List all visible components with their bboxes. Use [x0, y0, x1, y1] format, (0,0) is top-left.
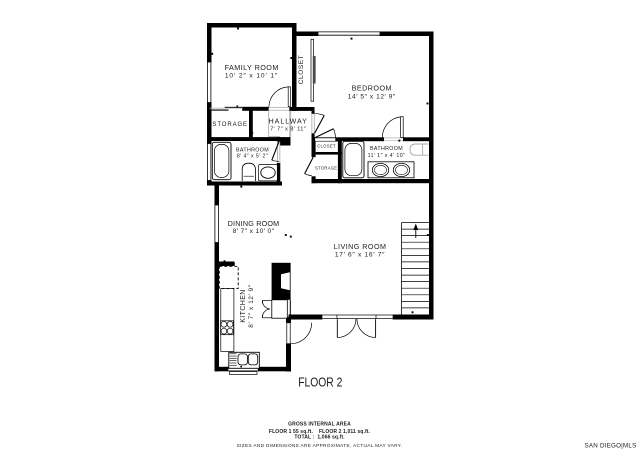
- svg-text:LIVING ROOM: LIVING ROOM: [334, 242, 387, 251]
- svg-text:STORAGE: STORAGE: [315, 165, 337, 170]
- svg-text:8′ 7″ x 10′ 0″: 8′ 7″ x 10′ 0″: [233, 228, 275, 235]
- svg-text:BATHROOM: BATHROOM: [370, 146, 403, 152]
- svg-text:CLOSET: CLOSET: [317, 143, 336, 148]
- svg-text:BEDROOM: BEDROOM: [352, 83, 392, 92]
- svg-text:11′ 1″ x 4′ 10″: 11′ 1″ x 4′ 10″: [368, 153, 406, 159]
- svg-text:TOTAL : 1,066 sq.ft.: TOTAL : 1,066 sq.ft.: [294, 435, 345, 441]
- svg-text:KITCHEN: KITCHEN: [240, 289, 247, 323]
- svg-text:STORAGE: STORAGE: [212, 122, 248, 128]
- svg-text:FAMILY ROOM: FAMILY ROOM: [225, 63, 279, 72]
- svg-text:7′ 7″ x 8′ 11″: 7′ 7″ x 8′ 11″: [270, 127, 306, 133]
- svg-text:17′ 6″ x 16′ 7″: 17′ 6″ x 16′ 7″: [335, 251, 385, 258]
- svg-text:14′ 5″ x 12′ 9″: 14′ 5″ x 12′ 9″: [348, 93, 396, 100]
- svg-text:DINING ROOM: DINING ROOM: [228, 219, 280, 228]
- svg-text:HALLWAY: HALLWAY: [269, 118, 308, 125]
- svg-text:SAN DIEGO|MLS: SAN DIEGO|MLS: [585, 442, 637, 449]
- svg-text:GROSS INTERNAL AREA: GROSS INTERNAL AREA: [288, 421, 351, 427]
- svg-text:10′ 2″ x 10′ 1″: 10′ 2″ x 10′ 1″: [225, 73, 278, 80]
- svg-text:CLOSET: CLOSET: [298, 55, 305, 84]
- svg-text:FLOOR 2: FLOOR 2: [298, 374, 342, 389]
- svg-text:8′ 4″ x 5′ 2″: 8′ 4″ x 5′ 2″: [237, 153, 268, 159]
- svg-text:SIZES AND DIMENSIONS ARE APPRO: SIZES AND DIMENSIONS ARE APPROXIMATE, AC…: [237, 443, 403, 448]
- svg-text:8′ 7″ x 12′ 9″: 8′ 7″ x 12′ 9″: [248, 284, 255, 328]
